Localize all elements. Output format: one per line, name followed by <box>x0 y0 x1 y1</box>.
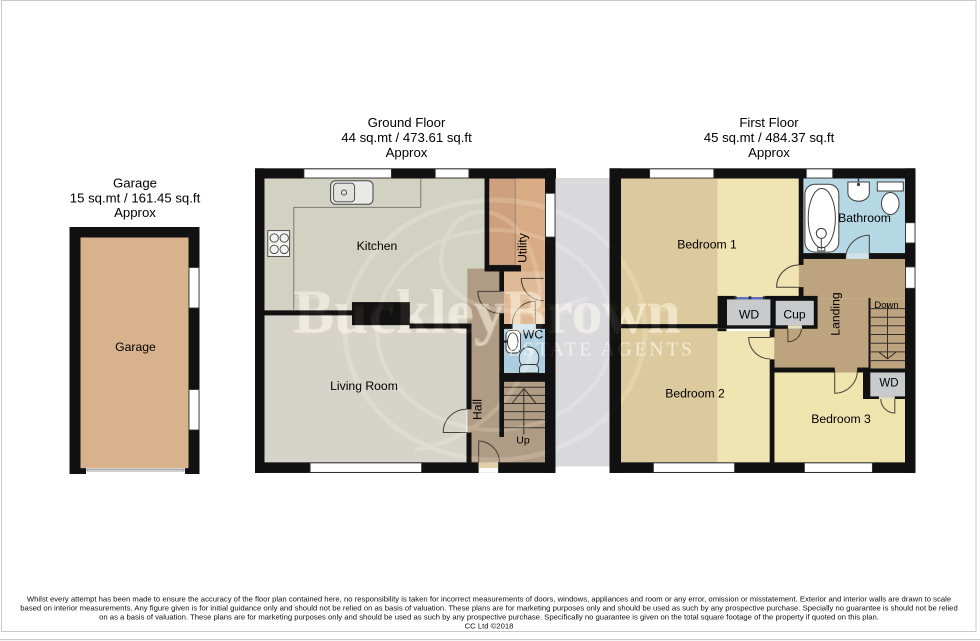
svg-text:Cup: Cup <box>783 308 806 322</box>
svg-text:Whilst every attempt has been: Whilst every attempt has been made to en… <box>27 595 951 604</box>
svg-text:Up: Up <box>516 435 530 447</box>
svg-text:Approx: Approx <box>114 205 156 220</box>
svg-text:First Floor: First Floor <box>739 115 799 130</box>
svg-text:45 sq.mt / 484.37 sq.ft: 45 sq.mt / 484.37 sq.ft <box>704 130 835 145</box>
svg-text:Approx: Approx <box>748 145 790 160</box>
svg-text:44 sq.mt / 473.61 sq.ft: 44 sq.mt / 473.61 sq.ft <box>341 130 472 145</box>
svg-text:Bedroom 2: Bedroom 2 <box>665 387 725 401</box>
svg-text:Hall: Hall <box>471 399 485 420</box>
svg-text:Bedroom 3: Bedroom 3 <box>811 412 871 426</box>
svg-text:WD: WD <box>739 308 760 322</box>
svg-text:CC Ltd ©2018: CC Ltd ©2018 <box>465 622 514 631</box>
svg-text:Garage: Garage <box>115 340 156 354</box>
svg-text:Bathroom: Bathroom <box>838 211 891 225</box>
svg-text:Landing: Landing <box>829 292 843 335</box>
svg-text:based on interior measurements: based on interior measurements. Any figu… <box>20 604 957 613</box>
svg-text:15 sq.mt / 161.45 sq.ft: 15 sq.mt / 161.45 sq.ft <box>70 191 201 206</box>
svg-text:WD: WD <box>879 378 898 390</box>
svg-text:Garage: Garage <box>113 176 157 191</box>
svg-text:Down: Down <box>874 300 898 311</box>
svg-text:Approx: Approx <box>386 145 428 160</box>
svg-text:Bedroom 1: Bedroom 1 <box>677 238 737 252</box>
svg-text:on as a basis of valuation. Th: on as a basis of valuation. These plans … <box>99 613 879 622</box>
svg-text:Ground Floor: Ground Floor <box>368 115 446 130</box>
